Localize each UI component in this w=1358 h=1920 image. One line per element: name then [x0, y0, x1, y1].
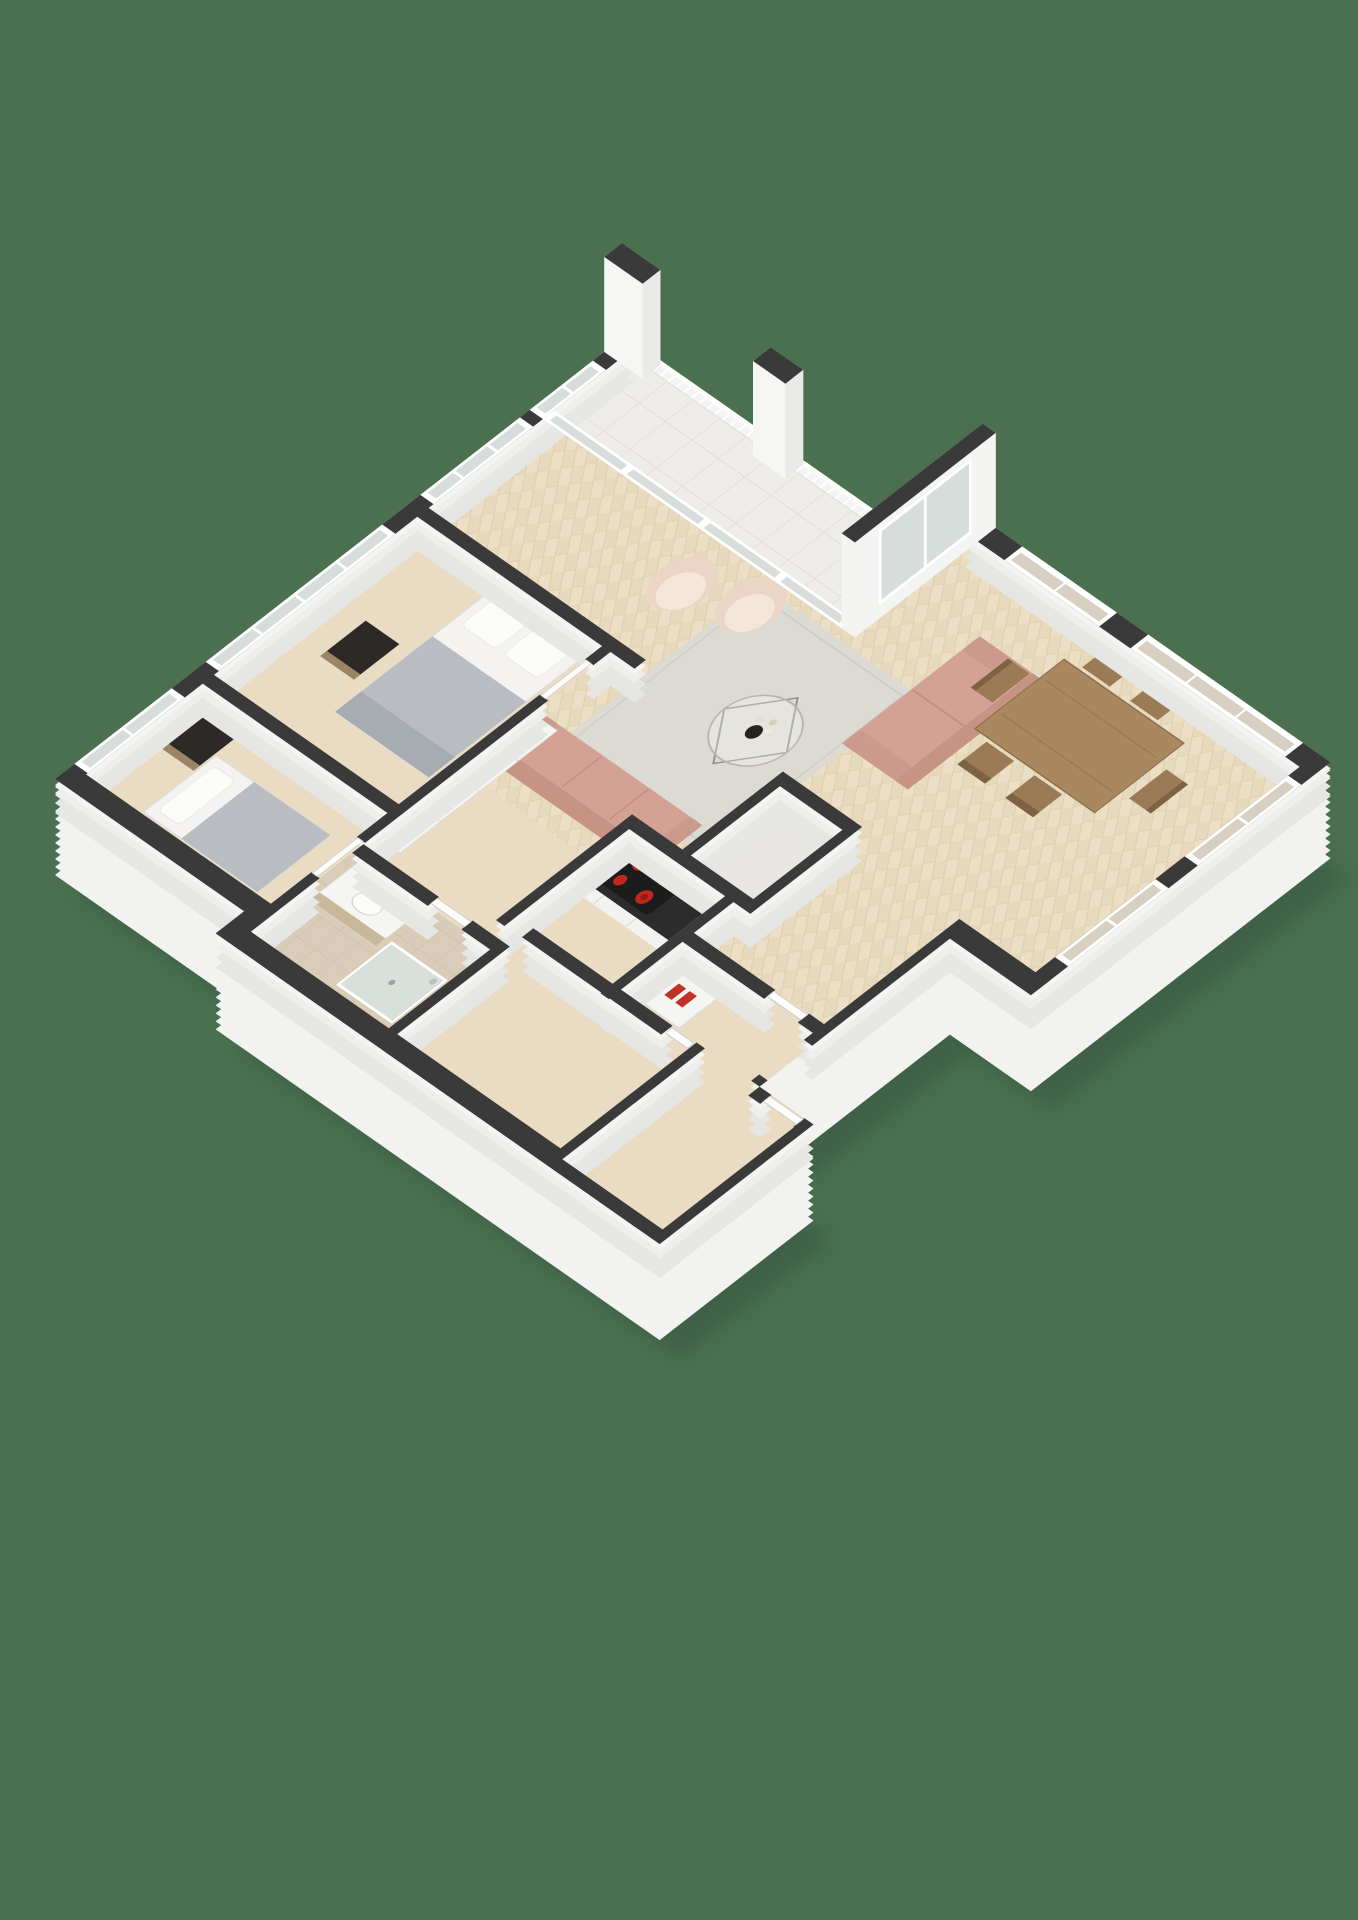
- floor-plan-canvas: [0, 0, 1358, 1920]
- pillar-face-se: [643, 270, 661, 379]
- pillar-middle: [753, 347, 803, 479]
- pillar-face-se: [785, 370, 803, 479]
- floor-plan-stage: [0, 0, 1358, 1920]
